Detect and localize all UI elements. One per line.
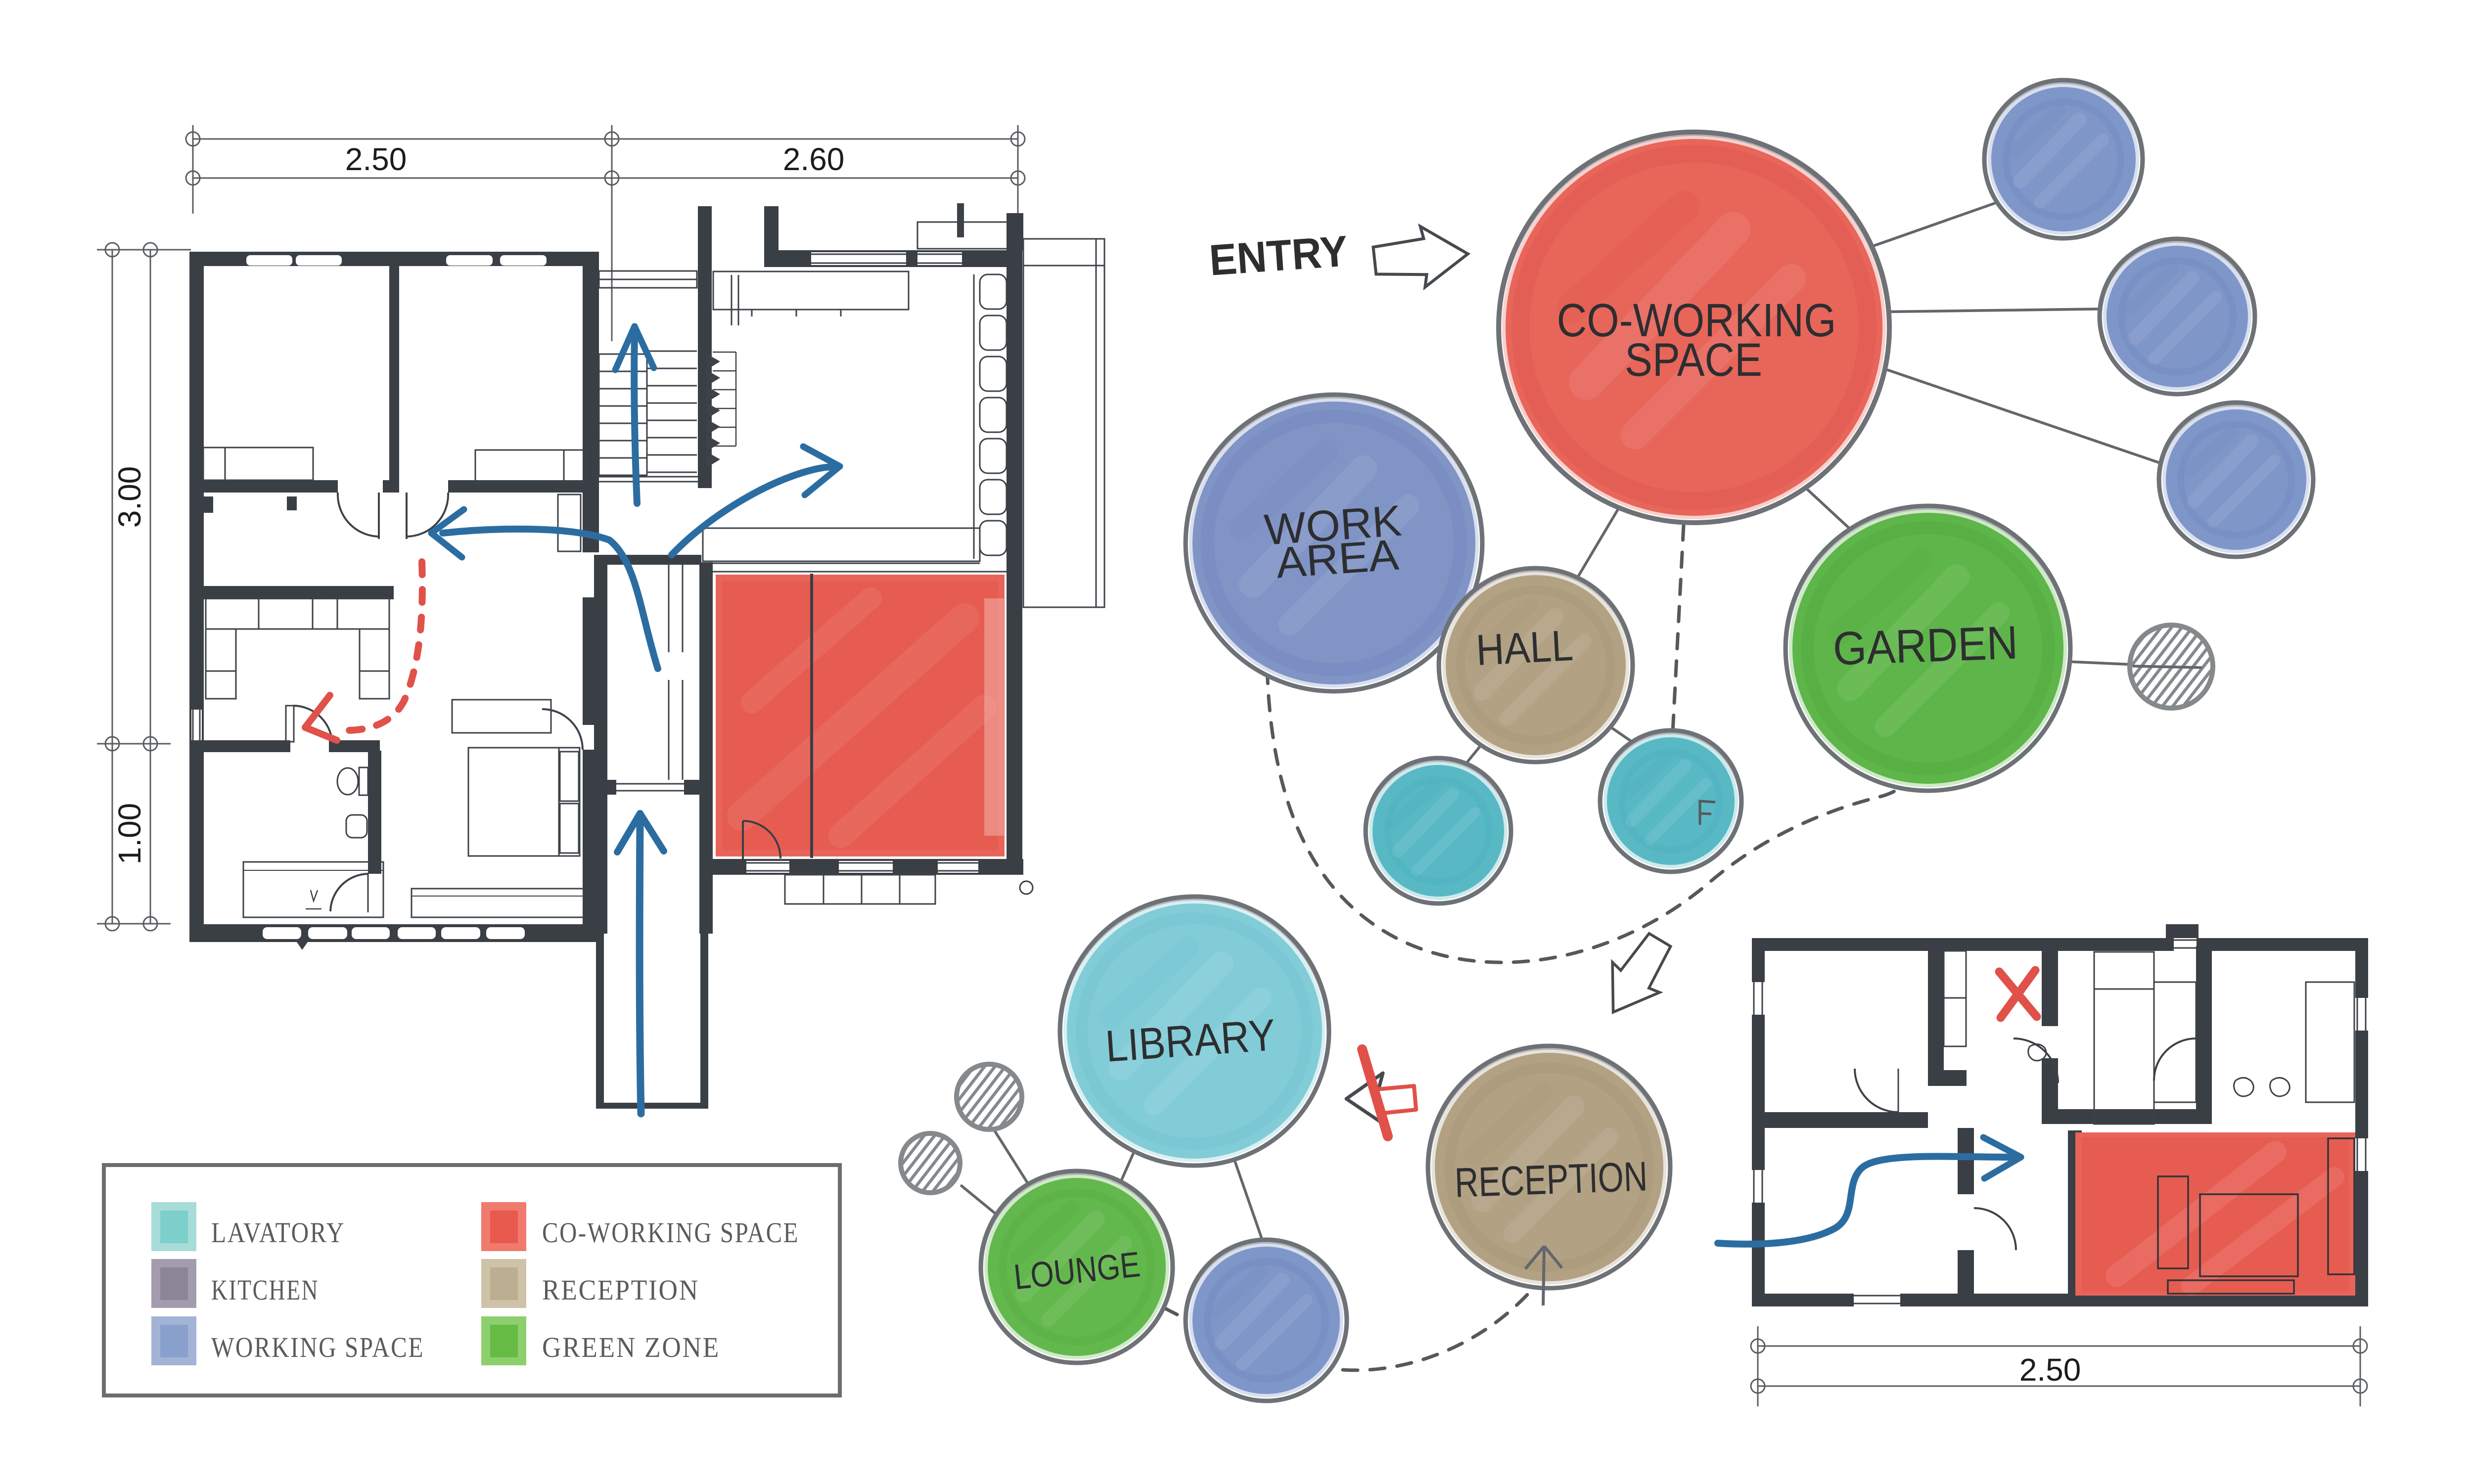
svg-text:WORKING SPACE: WORKING SPACE [211,1331,424,1363]
svg-text:2.60: 2.60 [783,141,845,177]
svg-text:SPACE: SPACE [1625,334,1762,386]
svg-text:GARDEN: GARDEN [1832,617,2018,675]
svg-text:2.50: 2.50 [345,141,407,177]
svg-text:AREA: AREA [1275,530,1401,587]
svg-text:3.00: 3.00 [112,466,147,528]
svg-text:RECEPTION: RECEPTION [1454,1153,1648,1206]
svg-text:ENTRY: ENTRY [1208,226,1349,284]
svg-text:HALL: HALL [1475,621,1574,675]
svg-text:KITCHEN: KITCHEN [211,1274,319,1306]
svg-text:LAVATORY: LAVATORY [211,1216,345,1249]
svg-text:CO-WORKING SPACE: CO-WORKING SPACE [542,1216,799,1249]
svg-text:1.00: 1.00 [112,803,147,865]
svg-text:GREEN ZONE: GREEN ZONE [542,1331,720,1363]
svg-text:2.50: 2.50 [2019,1352,2081,1388]
svg-text:RECEPTION: RECEPTION [542,1274,699,1306]
